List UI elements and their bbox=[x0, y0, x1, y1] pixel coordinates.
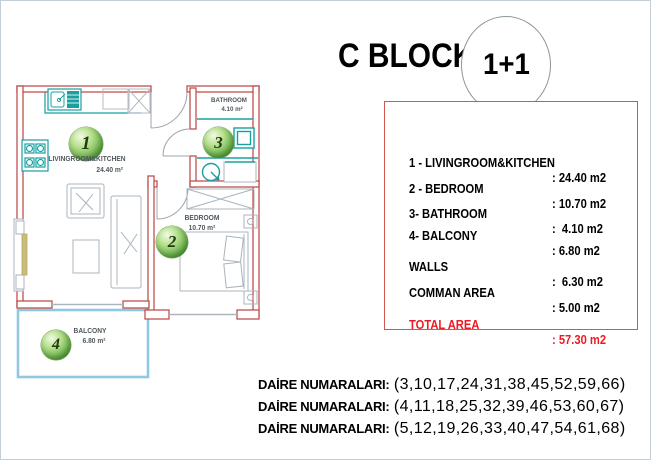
bed-icon bbox=[180, 232, 248, 291]
entrance-door-icon bbox=[151, 92, 187, 128]
room-number-badge-balcony: 4 bbox=[41, 330, 71, 360]
total-label: TOTAL AREA bbox=[409, 317, 479, 332]
washing-machine-icon bbox=[234, 128, 254, 148]
room-label-balcony: BALCONY bbox=[74, 328, 107, 335]
bathroom-door-icon bbox=[163, 129, 190, 156]
armchair-icon bbox=[67, 184, 104, 218]
window bbox=[14, 219, 27, 291]
basin-icon bbox=[203, 164, 220, 181]
stove-icon bbox=[22, 140, 48, 171]
row-label: 4- BALCONY bbox=[409, 228, 477, 243]
apartment-numbers-line: DAİRE NUMARALARI: (5,12,19,26,33,40,47,5… bbox=[258, 420, 626, 442]
table-row-total: TOTAL AREA : 57.30 m2 bbox=[385, 302, 637, 362]
sofa-icon bbox=[111, 196, 141, 288]
apartment-numbers-line: DAİRE NUMARALARI: (3,10,17,24,31,38,45,5… bbox=[258, 376, 626, 398]
room-label-livingroom: LIVINGROOM&KITCHEN bbox=[48, 156, 125, 163]
coffee-table-icon bbox=[73, 240, 99, 273]
apartment-numbers-list: DAİRE NUMARALARI: (3,10,17,24,31,38,45,5… bbox=[258, 376, 626, 442]
row-label: COMMAN AREA bbox=[409, 285, 495, 300]
unit-type-label: 1+1 bbox=[483, 48, 530, 82]
line-label: DAİRE NUMARALARI: bbox=[258, 399, 389, 414]
line-numbers: (4,11,18,25,32,39,46,53,60,67) bbox=[394, 398, 625, 415]
total-value: : 57.30 m2 bbox=[552, 332, 606, 347]
room-label-bathroom: BATHROOM bbox=[211, 97, 247, 104]
bedroom-door-icon bbox=[157, 188, 188, 219]
floor-plan-page: 1 2 3 4 LIVINGROOM&KITCHEN 24.40 m² BEDR… bbox=[0, 0, 651, 460]
page-title: C BLOCK bbox=[338, 37, 474, 76]
wardrobe-icon bbox=[187, 189, 254, 209]
apartment-numbers-line: DAİRE NUMARALARI: (4,11,18,25,32,39,46,5… bbox=[258, 398, 626, 420]
room-number-badge-bathroom: 3 bbox=[203, 127, 234, 158]
kitchen-sink-icon bbox=[48, 89, 81, 110]
wall-outline bbox=[17, 86, 259, 319]
room-area-livingroom: 24.40 m² bbox=[96, 167, 123, 174]
area-summary-table: 1 - LIVINGROOM&KITCHEN : 24.40 m2 2 - BE… bbox=[384, 101, 638, 330]
line-label: DAİRE NUMARALARI: bbox=[258, 377, 389, 392]
room-number-badge-bedroom: 2 bbox=[156, 226, 188, 258]
room-area-balcony: 6.80 m² bbox=[83, 338, 106, 345]
bathroom-counter bbox=[224, 162, 256, 182]
room-area-bathroom: 4.10 m² bbox=[221, 106, 242, 113]
unit-type-badge: 1+1 bbox=[461, 16, 551, 114]
line-label: DAİRE NUMARALARI: bbox=[258, 421, 389, 436]
room-area-bedroom: 10.70 m² bbox=[189, 225, 216, 232]
room-label-bedroom: BEDROOM bbox=[185, 215, 220, 222]
line-numbers: (3,10,17,24,31,38,45,52,59,66) bbox=[394, 376, 626, 393]
line-numbers: (5,12,19,26,33,40,47,54,61,68) bbox=[394, 420, 626, 437]
